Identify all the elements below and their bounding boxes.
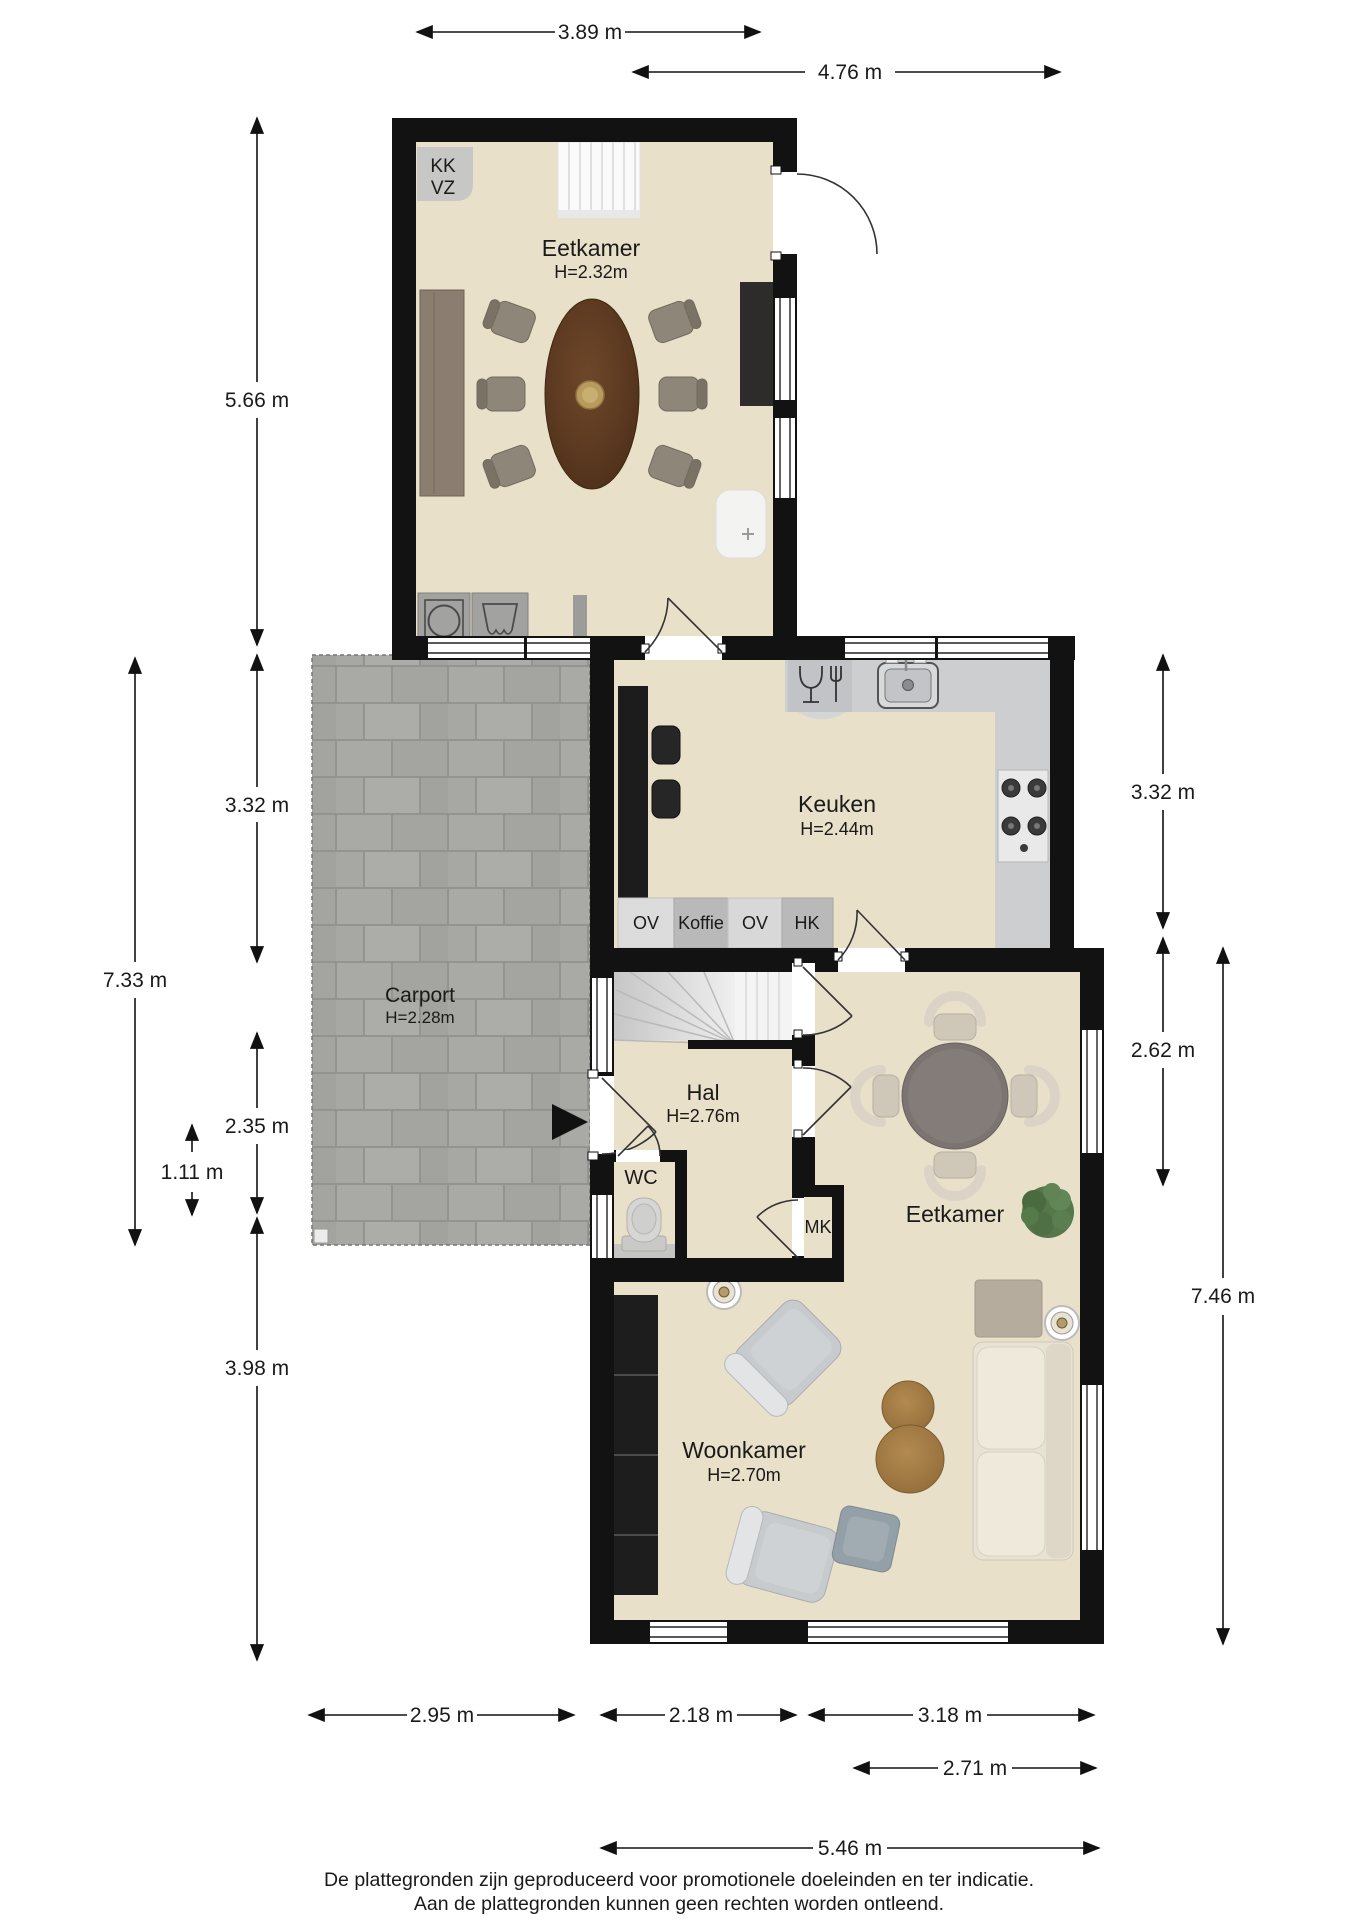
dim-left-4: 2.35 m (225, 1115, 289, 1138)
appliance-boxes: OV Koffie OV HK (618, 898, 833, 948)
door-arc (797, 174, 877, 254)
dim-right-3: 7.46 m (1191, 1285, 1255, 1308)
window (1082, 1030, 1102, 1153)
dim-bottom-3: 3.18 m (918, 1704, 982, 1727)
vz-label: VZ (431, 178, 456, 199)
carport-label: Carport (385, 984, 455, 1007)
kk-vz-box: KK VZ (417, 147, 473, 201)
keuken-label: Keuken (798, 791, 876, 817)
speaker-icon (1045, 1306, 1079, 1340)
window (1082, 1385, 1102, 1550)
carport-height-label: H=2.28m (385, 1008, 454, 1027)
stairs-hall-icon (614, 972, 792, 1049)
dishwasher (788, 660, 852, 712)
floorplan-page: Carport H=2.28m KK VZ (0, 0, 1358, 1920)
sideboard (420, 290, 464, 496)
stairs-top-icon (558, 142, 640, 218)
window (527, 638, 590, 658)
sofa (973, 1342, 1073, 1560)
hk-label: HK (794, 913, 819, 933)
window (938, 638, 1048, 658)
koffie-label: Koffie (678, 913, 724, 933)
window (845, 638, 935, 658)
kk-label: KK (430, 156, 456, 177)
window (775, 298, 795, 400)
chaise (975, 1280, 1042, 1337)
dim-bottom-5: 5.46 m (818, 1837, 882, 1860)
carport-marker (314, 1229, 328, 1243)
dim-bottom-1: 2.95 m (410, 1704, 474, 1727)
hal-label: Hal (686, 1080, 719, 1105)
footer-line-1: De plattegronden zijn geproduceerd voor … (324, 1869, 1034, 1891)
ov1-label: OV (633, 913, 659, 933)
stove-icon (998, 770, 1048, 862)
dim-left-1: 5.66 m (225, 389, 289, 412)
window (592, 1195, 612, 1258)
bar-stool (652, 726, 680, 764)
dim-right-1: 3.32 m (1131, 781, 1195, 804)
dim-top-1: 3.89 m (558, 21, 622, 44)
dim-bottom-2: 2.18 m (669, 1704, 733, 1727)
bar-stool (652, 780, 680, 818)
hal-height-label: H=2.76m (666, 1106, 740, 1126)
window (592, 978, 612, 1072)
carport-area: Carport H=2.28m (312, 655, 590, 1245)
floorplan-svg: Carport H=2.28m KK VZ (0, 0, 1358, 1920)
dim-left-3: 7.33 m (103, 969, 167, 992)
eetkamer-boven-label: Eetkamer (542, 235, 641, 261)
eetkamer-boven-height-label: H=2.32m (554, 262, 628, 282)
keuken-height-label: H=2.44m (800, 819, 874, 839)
woonkamer-height-label: H=2.70m (707, 1465, 781, 1485)
dim-right-2: 2.62 m (1131, 1039, 1195, 1062)
ov2-label: OV (742, 913, 768, 933)
dim-left-2: 3.32 m (225, 794, 289, 817)
woonkamer-label: Woonkamer (682, 1437, 806, 1463)
round-table (902, 1043, 1008, 1149)
sink-icon (878, 654, 938, 708)
dim-top-2: 4.76 m (818, 61, 882, 84)
window (428, 638, 524, 658)
footer-line-2: Aan de plattegronden kunnen geen rechten… (414, 1893, 944, 1915)
window (650, 1622, 727, 1642)
wc-label: WC (624, 1167, 657, 1189)
mk-label: MK (805, 1217, 832, 1237)
eetkamer-label: Eetkamer (906, 1201, 1005, 1227)
dim-bottom-4: 2.71 m (943, 1757, 1007, 1780)
dim-left-6: 3.98 m (225, 1357, 289, 1380)
cabinet (740, 282, 773, 406)
coffee-table (876, 1425, 944, 1493)
dim-left-5: 1.11 m (161, 1161, 224, 1184)
front-door-opening (590, 1076, 614, 1154)
side-table (716, 490, 766, 558)
tv-unit (614, 1295, 658, 1595)
dining-table (545, 299, 639, 489)
window (775, 418, 795, 498)
window (808, 1622, 1008, 1642)
pouf (831, 1504, 902, 1573)
